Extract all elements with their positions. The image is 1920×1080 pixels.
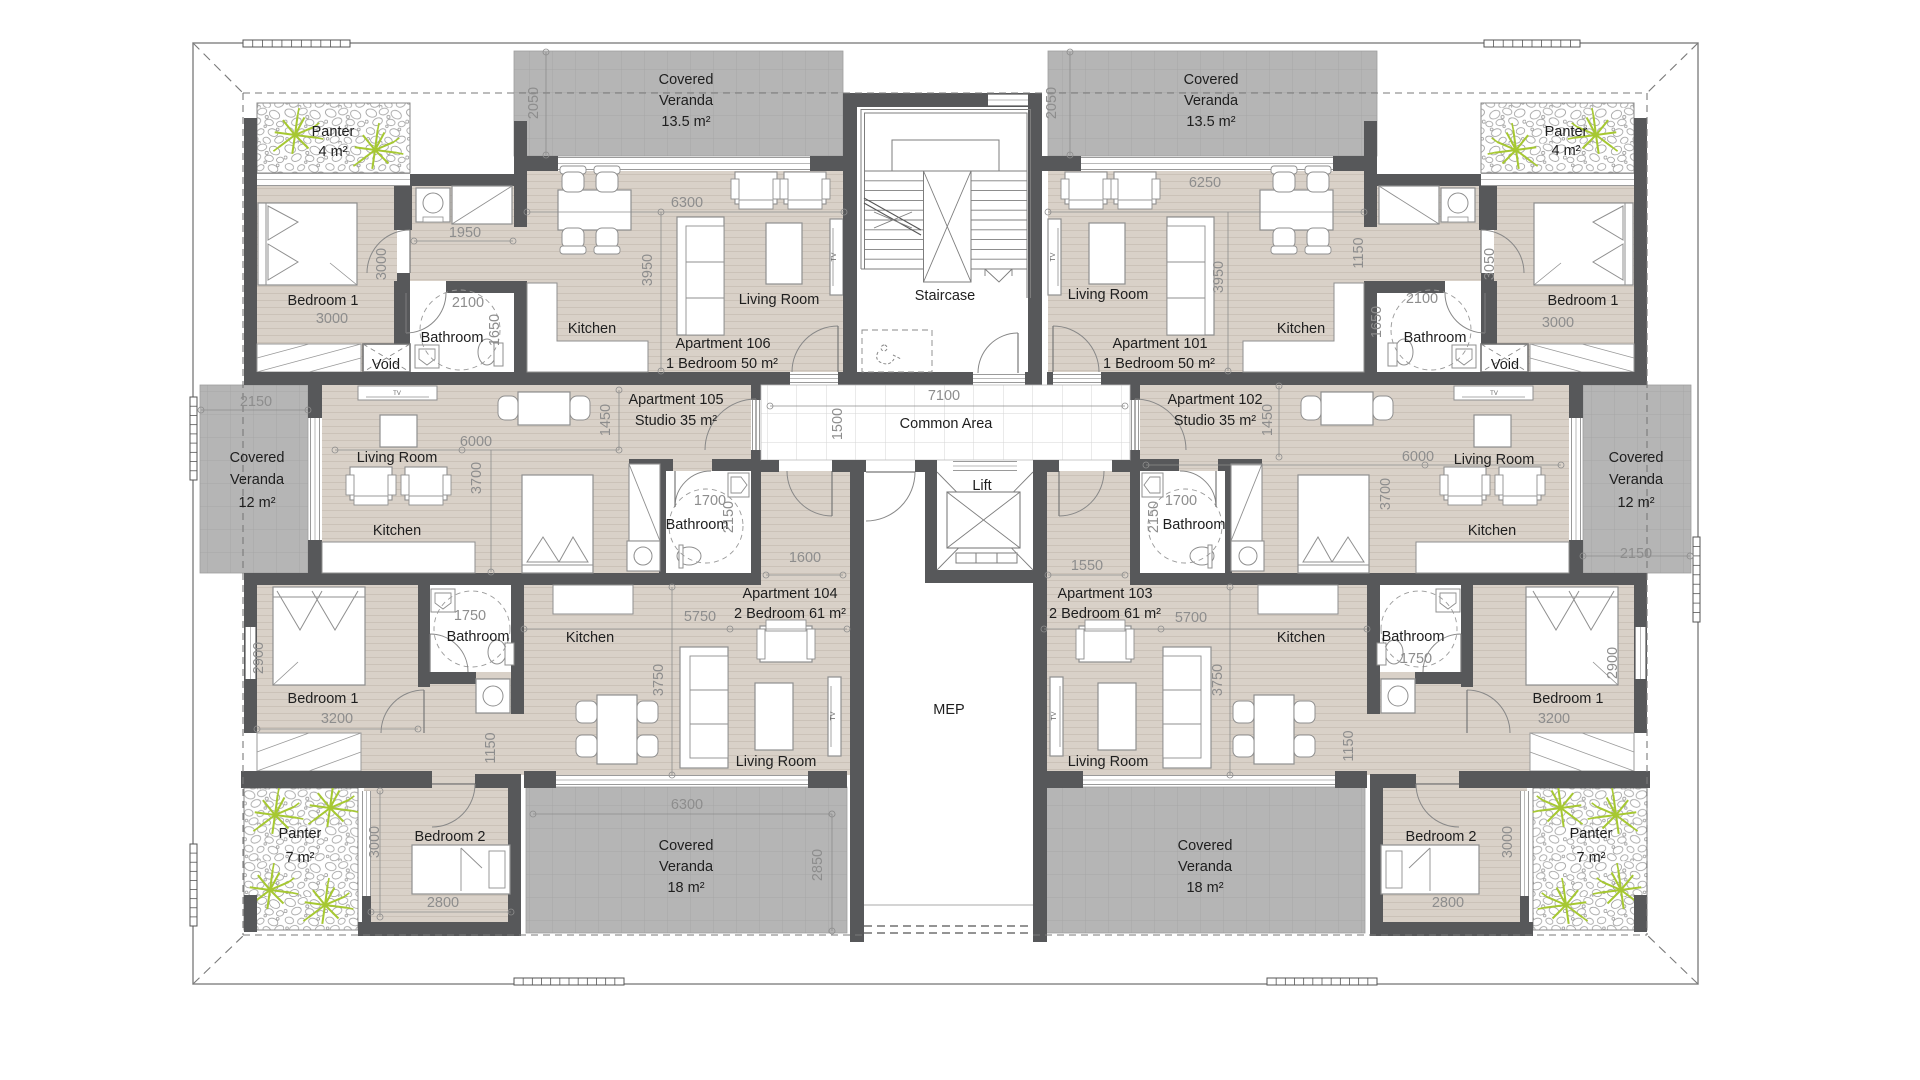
svg-text:Bathroom: Bathroom (1163, 517, 1226, 533)
svg-text:Kitchen: Kitchen (1277, 630, 1325, 646)
svg-text:Bathroom: Bathroom (666, 517, 729, 533)
svg-text:Apartment 106: Apartment 106 (675, 336, 770, 352)
svg-text:1150: 1150 (1341, 730, 1357, 761)
svg-text:2100: 2100 (1406, 291, 1438, 307)
svg-text:2050: 2050 (1044, 87, 1060, 119)
svg-text:Apartment 101: Apartment 101 (1112, 336, 1207, 352)
svg-text:3700: 3700 (1378, 478, 1394, 510)
svg-text:Living Room: Living Room (1068, 754, 1149, 770)
svg-text:Veranda: Veranda (230, 472, 285, 488)
svg-text:Kitchen: Kitchen (1468, 523, 1516, 539)
svg-text:3000: 3000 (1542, 315, 1574, 331)
svg-text:Bathroom: Bathroom (447, 629, 510, 645)
svg-text:Kitchen: Kitchen (1277, 321, 1325, 337)
svg-text:18 m²: 18 m² (1186, 880, 1223, 896)
svg-text:2850: 2850 (810, 849, 826, 881)
svg-text:Bathroom: Bathroom (421, 330, 484, 346)
svg-text:Living Room: Living Room (357, 450, 438, 466)
svg-text:5700: 5700 (1175, 610, 1207, 626)
svg-text:7100: 7100 (928, 388, 960, 404)
svg-text:Veranda: Veranda (1609, 472, 1664, 488)
svg-text:2 Bedroom 61 m²: 2 Bedroom 61 m² (1049, 606, 1161, 622)
svg-text:Apartment 105: Apartment 105 (628, 392, 723, 408)
svg-text:Bathroom: Bathroom (1382, 629, 1445, 645)
svg-text:Covered: Covered (1609, 450, 1664, 466)
svg-text:Bedroom 1: Bedroom 1 (1548, 293, 1619, 309)
svg-text:3950: 3950 (640, 254, 656, 286)
svg-text:MEP: MEP (933, 702, 964, 718)
svg-text:Panter: Panter (1545, 124, 1588, 140)
svg-text:18 m²: 18 m² (667, 880, 704, 896)
svg-text:3700: 3700 (469, 462, 485, 494)
svg-text:Void: Void (1491, 357, 1519, 373)
svg-text:Covered: Covered (659, 838, 714, 854)
svg-text:Bedroom 1: Bedroom 1 (288, 293, 359, 309)
svg-text:4 m²: 4 m² (1552, 143, 1581, 159)
svg-text:2900: 2900 (1605, 647, 1621, 679)
svg-text:Void: Void (372, 357, 400, 373)
svg-text:2800: 2800 (1432, 895, 1464, 911)
svg-text:Apartment 104: Apartment 104 (742, 586, 837, 602)
svg-text:Covered: Covered (659, 72, 714, 88)
svg-text:Covered: Covered (1178, 838, 1233, 854)
svg-text:Panter: Panter (279, 826, 322, 842)
svg-text:6000: 6000 (460, 434, 492, 450)
svg-text:Panter: Panter (1570, 826, 1613, 842)
svg-text:Kitchen: Kitchen (568, 321, 616, 337)
svg-text:TV: TV (393, 391, 401, 397)
svg-text:3000: 3000 (1500, 826, 1516, 858)
svg-text:6300: 6300 (671, 195, 703, 211)
svg-text:1600: 1600 (789, 550, 821, 566)
svg-text:TV: TV (1051, 711, 1058, 720)
svg-text:3050: 3050 (1482, 248, 1498, 280)
svg-text:TV: TV (1050, 252, 1057, 261)
svg-text:1500: 1500 (830, 408, 846, 440)
svg-text:Studio 35 m²: Studio 35 m² (635, 413, 717, 429)
svg-text:Bathroom: Bathroom (1404, 330, 1467, 346)
svg-text:3000: 3000 (367, 826, 383, 858)
svg-text:Living Room: Living Room (1454, 452, 1535, 468)
svg-text:Studio 35 m²: Studio 35 m² (1174, 413, 1256, 429)
svg-text:1650: 1650 (487, 314, 503, 346)
svg-text:Staircase: Staircase (915, 288, 975, 304)
svg-text:1550: 1550 (1071, 558, 1103, 574)
svg-text:Veranda: Veranda (659, 93, 714, 109)
svg-text:Apartment 102: Apartment 102 (1167, 392, 1262, 408)
svg-text:1700: 1700 (1165, 493, 1197, 509)
svg-text:Panter: Panter (312, 124, 355, 140)
svg-text:1150: 1150 (483, 732, 499, 763)
svg-text:Bedroom 2: Bedroom 2 (415, 829, 486, 845)
svg-text:3200: 3200 (321, 711, 353, 727)
svg-text:6000: 6000 (1402, 449, 1434, 465)
svg-text:2900: 2900 (251, 642, 267, 674)
svg-text:2800: 2800 (427, 895, 459, 911)
svg-text:5750: 5750 (684, 609, 716, 625)
svg-text:3750: 3750 (1210, 664, 1226, 696)
svg-text:2150: 2150 (721, 501, 737, 533)
svg-text:Living Room: Living Room (736, 754, 817, 770)
svg-text:TV: TV (1490, 391, 1498, 397)
svg-text:TV: TV (831, 252, 838, 261)
svg-text:3000: 3000 (316, 311, 348, 327)
svg-text:TV: TV (830, 711, 837, 720)
svg-text:Veranda: Veranda (1184, 93, 1239, 109)
svg-text:6300: 6300 (671, 797, 703, 813)
svg-text:7 m²: 7 m² (1577, 850, 1606, 866)
svg-text:1450: 1450 (598, 404, 614, 436)
svg-text:Lift: Lift (972, 478, 991, 494)
svg-text:4 m²: 4 m² (319, 144, 348, 160)
svg-text:2050: 2050 (526, 87, 542, 119)
svg-text:1 Bedroom 50 m²: 1 Bedroom 50 m² (666, 356, 778, 372)
svg-text:Bedroom 2: Bedroom 2 (1406, 829, 1477, 845)
svg-text:1 Bedroom 50 m²: 1 Bedroom 50 m² (1103, 356, 1215, 372)
svg-text:Bedroom 1: Bedroom 1 (1533, 691, 1604, 707)
svg-text:3200: 3200 (1538, 711, 1570, 727)
svg-text:Covered: Covered (230, 450, 285, 466)
svg-text:Covered: Covered (1184, 72, 1239, 88)
svg-text:Kitchen: Kitchen (373, 523, 421, 539)
svg-text:1750: 1750 (1400, 651, 1432, 667)
svg-text:13.5 m²: 13.5 m² (661, 114, 710, 130)
svg-text:1750: 1750 (454, 608, 486, 624)
svg-text:12 m²: 12 m² (1617, 495, 1654, 511)
svg-text:3000: 3000 (374, 248, 390, 280)
svg-text:Veranda: Veranda (1178, 859, 1233, 875)
svg-text:2 Bedroom 61 m²: 2 Bedroom 61 m² (734, 606, 846, 622)
svg-text:1150: 1150 (1351, 237, 1367, 268)
svg-text:Kitchen: Kitchen (566, 630, 614, 646)
svg-text:2150: 2150 (1620, 546, 1652, 562)
svg-text:3950: 3950 (1211, 261, 1227, 293)
svg-text:12 m²: 12 m² (238, 495, 275, 511)
svg-text:1950: 1950 (449, 225, 481, 241)
svg-text:1450: 1450 (1260, 404, 1276, 436)
svg-text:Living Room: Living Room (1068, 287, 1149, 303)
svg-text:13.5 m²: 13.5 m² (1186, 114, 1235, 130)
svg-text:6250: 6250 (1189, 175, 1221, 191)
svg-text:Veranda: Veranda (659, 859, 714, 875)
svg-text:Common Area: Common Area (900, 416, 994, 432)
svg-text:3750: 3750 (651, 664, 667, 696)
svg-text:Living Room: Living Room (739, 292, 820, 308)
svg-text:2150: 2150 (240, 394, 272, 410)
svg-text:2100: 2100 (452, 295, 484, 311)
svg-text:Bedroom 1: Bedroom 1 (288, 691, 359, 707)
svg-text:1650: 1650 (1369, 306, 1385, 338)
svg-text:Apartment 103: Apartment 103 (1057, 586, 1152, 602)
svg-text:7 m²: 7 m² (286, 850, 315, 866)
svg-text:2150: 2150 (1146, 501, 1162, 533)
